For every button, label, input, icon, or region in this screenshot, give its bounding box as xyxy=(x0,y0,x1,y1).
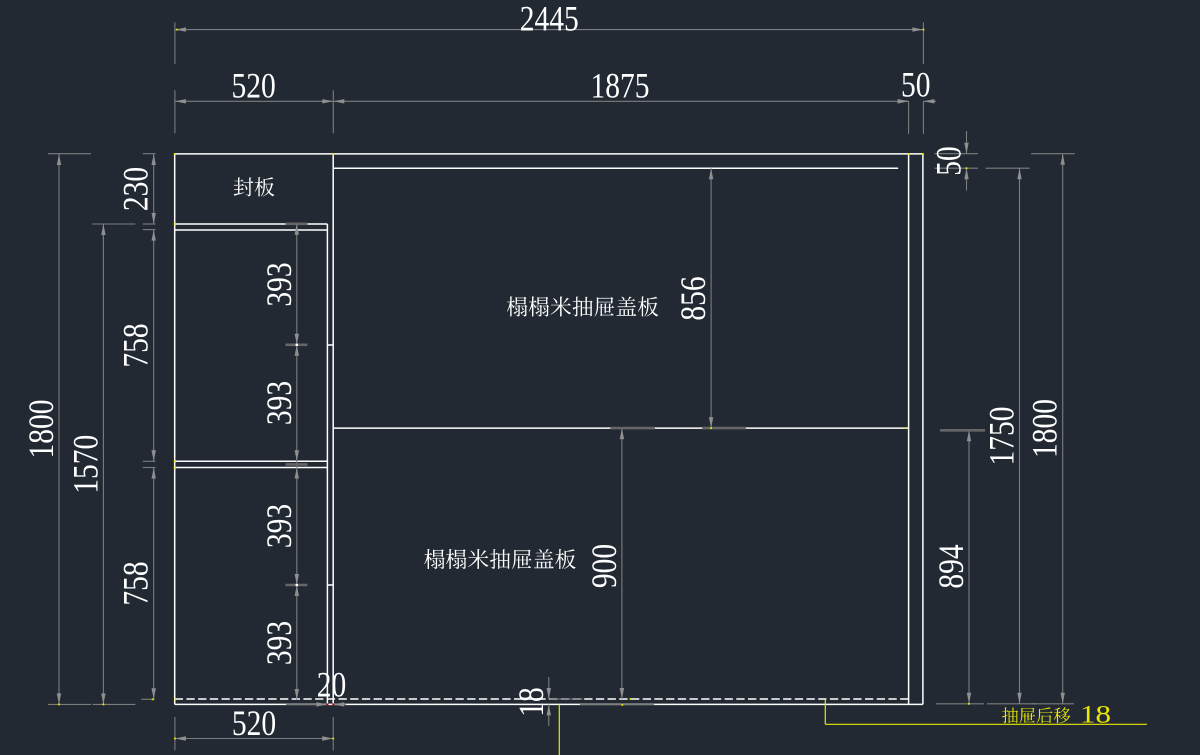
svg-text:856: 856 xyxy=(673,276,713,320)
svg-text:758: 758 xyxy=(116,561,156,605)
svg-text:393: 393 xyxy=(259,621,299,665)
svg-text:393: 393 xyxy=(259,504,299,548)
svg-text:900: 900 xyxy=(584,544,624,588)
svg-text:758: 758 xyxy=(116,323,156,367)
svg-text:1570: 1570 xyxy=(65,435,105,494)
svg-text:1875: 1875 xyxy=(591,66,650,106)
svg-text:520: 520 xyxy=(231,66,275,106)
svg-text:50: 50 xyxy=(901,65,931,105)
svg-text:393: 393 xyxy=(259,262,299,306)
svg-text:1750: 1750 xyxy=(982,407,1022,466)
svg-text:894: 894 xyxy=(931,544,971,589)
svg-text:520: 520 xyxy=(232,703,276,743)
svg-text:1800: 1800 xyxy=(21,400,61,459)
svg-text:20: 20 xyxy=(317,664,347,704)
svg-text:230: 230 xyxy=(116,167,156,211)
svg-text:18: 18 xyxy=(1080,701,1111,728)
svg-text:393: 393 xyxy=(259,381,299,425)
svg-text:50: 50 xyxy=(928,146,968,176)
svg-text:1800: 1800 xyxy=(1025,399,1065,458)
svg-text:18: 18 xyxy=(511,687,551,717)
svg-text:2445: 2445 xyxy=(520,0,579,38)
